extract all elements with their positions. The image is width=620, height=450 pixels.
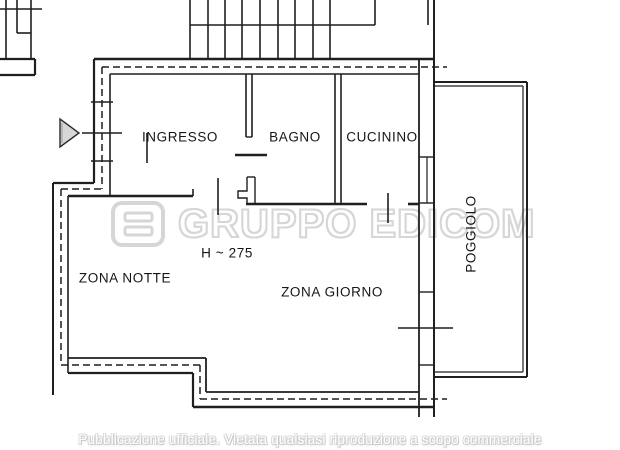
room-label-zona-giorno: ZONA GIORNO — [281, 285, 383, 300]
room-label-cucinino: CUCININO — [346, 130, 418, 145]
ceiling-height-note: H ~ 275 — [201, 246, 253, 261]
interior-walls — [147, 74, 419, 223]
balcony-walls — [434, 82, 527, 377]
floor-plan-drawing — [0, 0, 620, 450]
staircase — [190, 0, 428, 59]
perimeter-walls — [53, 0, 453, 417]
floor-plan-page: GRUPPO EDICOM — [0, 0, 620, 450]
dashed-boundary — [61, 67, 447, 399]
adjacent-unit-walls — [0, 0, 42, 75]
footer-caption: Pubblicazione ufficiale. Vietata qualsia… — [0, 432, 620, 447]
entry-arrow-icon — [60, 119, 122, 147]
room-label-bagno: BAGNO — [269, 130, 321, 145]
room-label-poggiolo: POGGIOLO — [464, 195, 479, 273]
room-label-zona-notte: ZONA NOTTE — [79, 271, 171, 286]
room-label-ingresso: INGRESSO — [142, 130, 218, 145]
